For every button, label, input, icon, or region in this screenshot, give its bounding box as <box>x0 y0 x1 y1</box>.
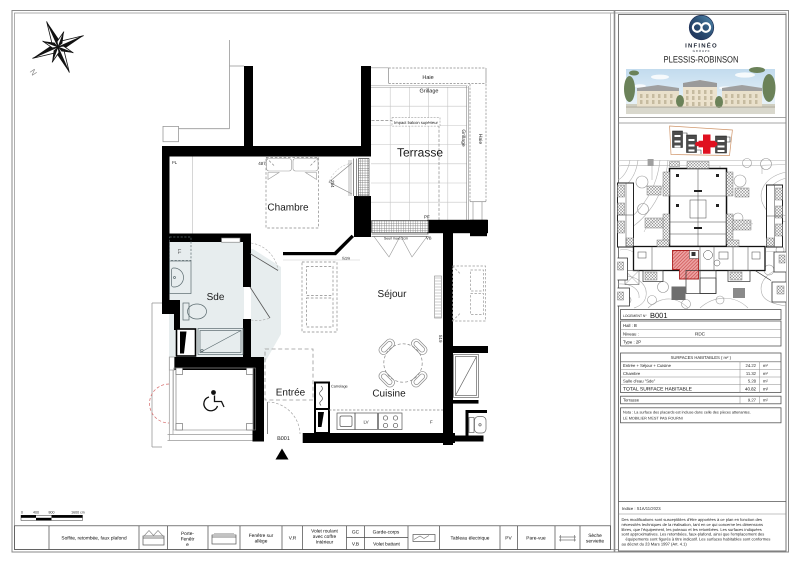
svg-text:Hall : B: Hall : B <box>623 323 637 328</box>
svg-text:800: 800 <box>49 511 55 515</box>
svg-text:Grillage: Grillage <box>460 129 466 146</box>
svg-text:GC: GC <box>352 530 360 536</box>
svg-text:Intérieur: Intérieur <box>316 540 334 546</box>
svg-text:Chambre: Chambre <box>623 371 641 376</box>
svg-text:Impact balcon supérieur: Impact balcon supérieur <box>394 120 438 125</box>
svg-text:Indice : S1A/11/2023: Indice : S1A/11/2023 <box>622 506 661 511</box>
svg-text:V.R: V.R <box>289 536 297 542</box>
svg-text:1600 cm: 1600 cm <box>71 511 85 515</box>
svg-text:Sde: Sde <box>207 292 225 303</box>
svg-text:PV: PV <box>505 536 512 542</box>
svg-text:LL: LL <box>177 249 182 255</box>
svg-text:m²: m² <box>763 386 769 391</box>
svg-text:LOGEMENT N°: LOGEMENT N° <box>623 314 647 318</box>
svg-text:Seuil maxi 2cm: Seuil maxi 2cm <box>384 237 408 241</box>
svg-text:400: 400 <box>33 511 39 515</box>
svg-text:avec coffre: avec coffre <box>313 534 337 540</box>
svg-text:GROUPE: GROUPE <box>693 49 711 53</box>
svg-text:Fenêtr: Fenêtr <box>181 537 195 543</box>
svg-text:40.82: 40.82 <box>745 386 757 391</box>
svg-text:Entrée + Séjour + Cuisine: Entrée + Séjour + Cuisine <box>623 363 672 368</box>
svg-text:24.22: 24.22 <box>746 363 757 368</box>
svg-text:Carrelage: Carrelage <box>331 385 348 389</box>
svg-text:487: 487 <box>258 161 266 166</box>
svg-text:Volet roulant: Volet roulant <box>311 529 338 535</box>
svg-text:Type : 2P: Type : 2P <box>623 340 641 345</box>
svg-text:Volet battant: Volet battant <box>373 542 400 548</box>
svg-text:e: e <box>186 543 189 548</box>
svg-text:m²: m² <box>763 378 768 383</box>
svg-text:0: 0 <box>21 511 23 515</box>
svg-text:9.27: 9.27 <box>748 398 757 403</box>
svg-text:254: 254 <box>330 180 335 188</box>
svg-text:Fenêtre sur: Fenêtre sur <box>249 533 274 539</box>
svg-text:N: N <box>28 67 39 77</box>
svg-text:SURFACES HABITABLES ( m² ): SURFACES HABITABLES ( m² ) <box>671 355 732 360</box>
svg-text:519: 519 <box>438 335 443 343</box>
svg-text:Sèche: Sèche <box>588 533 602 539</box>
svg-text:Salle d'eau "Sde": Salle d'eau "Sde" <box>623 378 656 383</box>
svg-text:Porte-: Porte- <box>181 531 194 537</box>
svg-text:Soffite, retombée, faux plafon: Soffite, retombée, faux plafond <box>61 536 127 542</box>
svg-text:Garde-corps: Garde-corps <box>373 530 400 536</box>
svg-text:Terrasse: Terrasse <box>397 146 443 160</box>
svg-text:5.28: 5.28 <box>748 378 757 383</box>
svg-text:PF: PF <box>424 215 430 220</box>
svg-text:serviette: serviette <box>586 539 604 545</box>
svg-text:Haie: Haie <box>477 134 483 145</box>
svg-text:B001: B001 <box>277 436 290 442</box>
svg-text:LE MOBILIER N'EST PAS FOURNI: LE MOBILIER N'EST PAS FOURNI <box>623 416 683 420</box>
svg-text:TOTAL SURFACE HABITABLE: TOTAL SURFACE HABITABLE <box>623 386 693 392</box>
svg-text:Chambre: Chambre <box>267 203 309 214</box>
svg-text:LV: LV <box>363 420 368 425</box>
svg-text:Entrée: Entrée <box>276 388 306 399</box>
svg-text:B001: B001 <box>650 311 668 320</box>
svg-text:Tableau électrique: Tableau électrique <box>451 536 490 542</box>
svg-text:m²: m² <box>763 398 768 403</box>
svg-text:Pare-vue: Pare-vue <box>526 536 546 542</box>
svg-text:RDC: RDC <box>695 332 706 337</box>
svg-text:VB: VB <box>426 236 432 241</box>
svg-text:PL: PL <box>172 160 178 165</box>
svg-text:Niveau :: Niveau : <box>623 331 639 336</box>
svg-text:Cuisine: Cuisine <box>372 389 406 400</box>
svg-text:allège: allège <box>255 539 268 545</box>
svg-text:F: F <box>430 420 433 425</box>
svg-text:au décret du 23 Mars 1997 (Art: au décret du 23 Mars 1997 (Art. 4.1) <box>622 542 688 547</box>
svg-text:11.32: 11.32 <box>746 371 757 376</box>
svg-text:m²: m² <box>763 363 768 368</box>
svg-text:PLESSIS-ROBINSON: PLESSIS-ROBINSON <box>664 55 739 65</box>
svg-text:Haie: Haie <box>422 75 433 81</box>
svg-text:V.B: V.B <box>352 542 359 548</box>
svg-text:m²: m² <box>763 371 768 376</box>
svg-text:Terrasse: Terrasse <box>623 398 640 403</box>
svg-text:Nota : La surface des placards: Nota : La surface des placards est inclu… <box>623 411 751 415</box>
svg-text:Séjour: Séjour <box>378 289 408 300</box>
svg-text:Grillage: Grillage <box>420 89 439 95</box>
